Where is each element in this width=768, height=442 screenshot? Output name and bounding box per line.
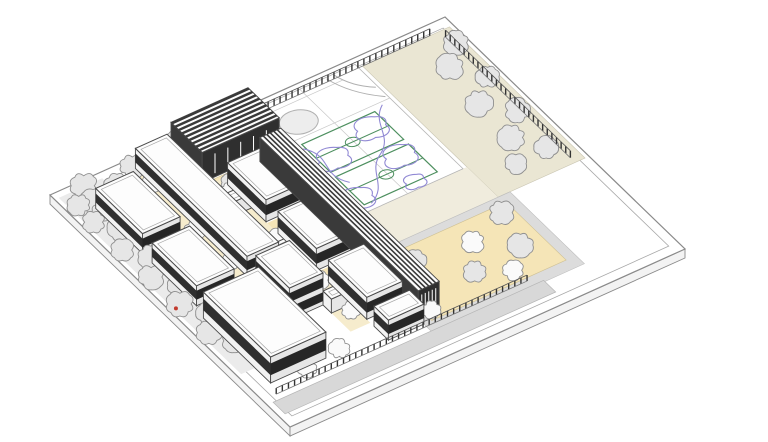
tree <box>83 211 105 233</box>
site-plan-canvas <box>0 0 768 442</box>
tree <box>111 239 134 261</box>
tree <box>490 201 514 224</box>
tree-canopy <box>490 201 514 224</box>
red-site-marker <box>174 306 178 310</box>
tree-canopy <box>111 239 134 261</box>
tree-canopy <box>83 211 105 233</box>
architectural-model-view <box>0 0 768 442</box>
